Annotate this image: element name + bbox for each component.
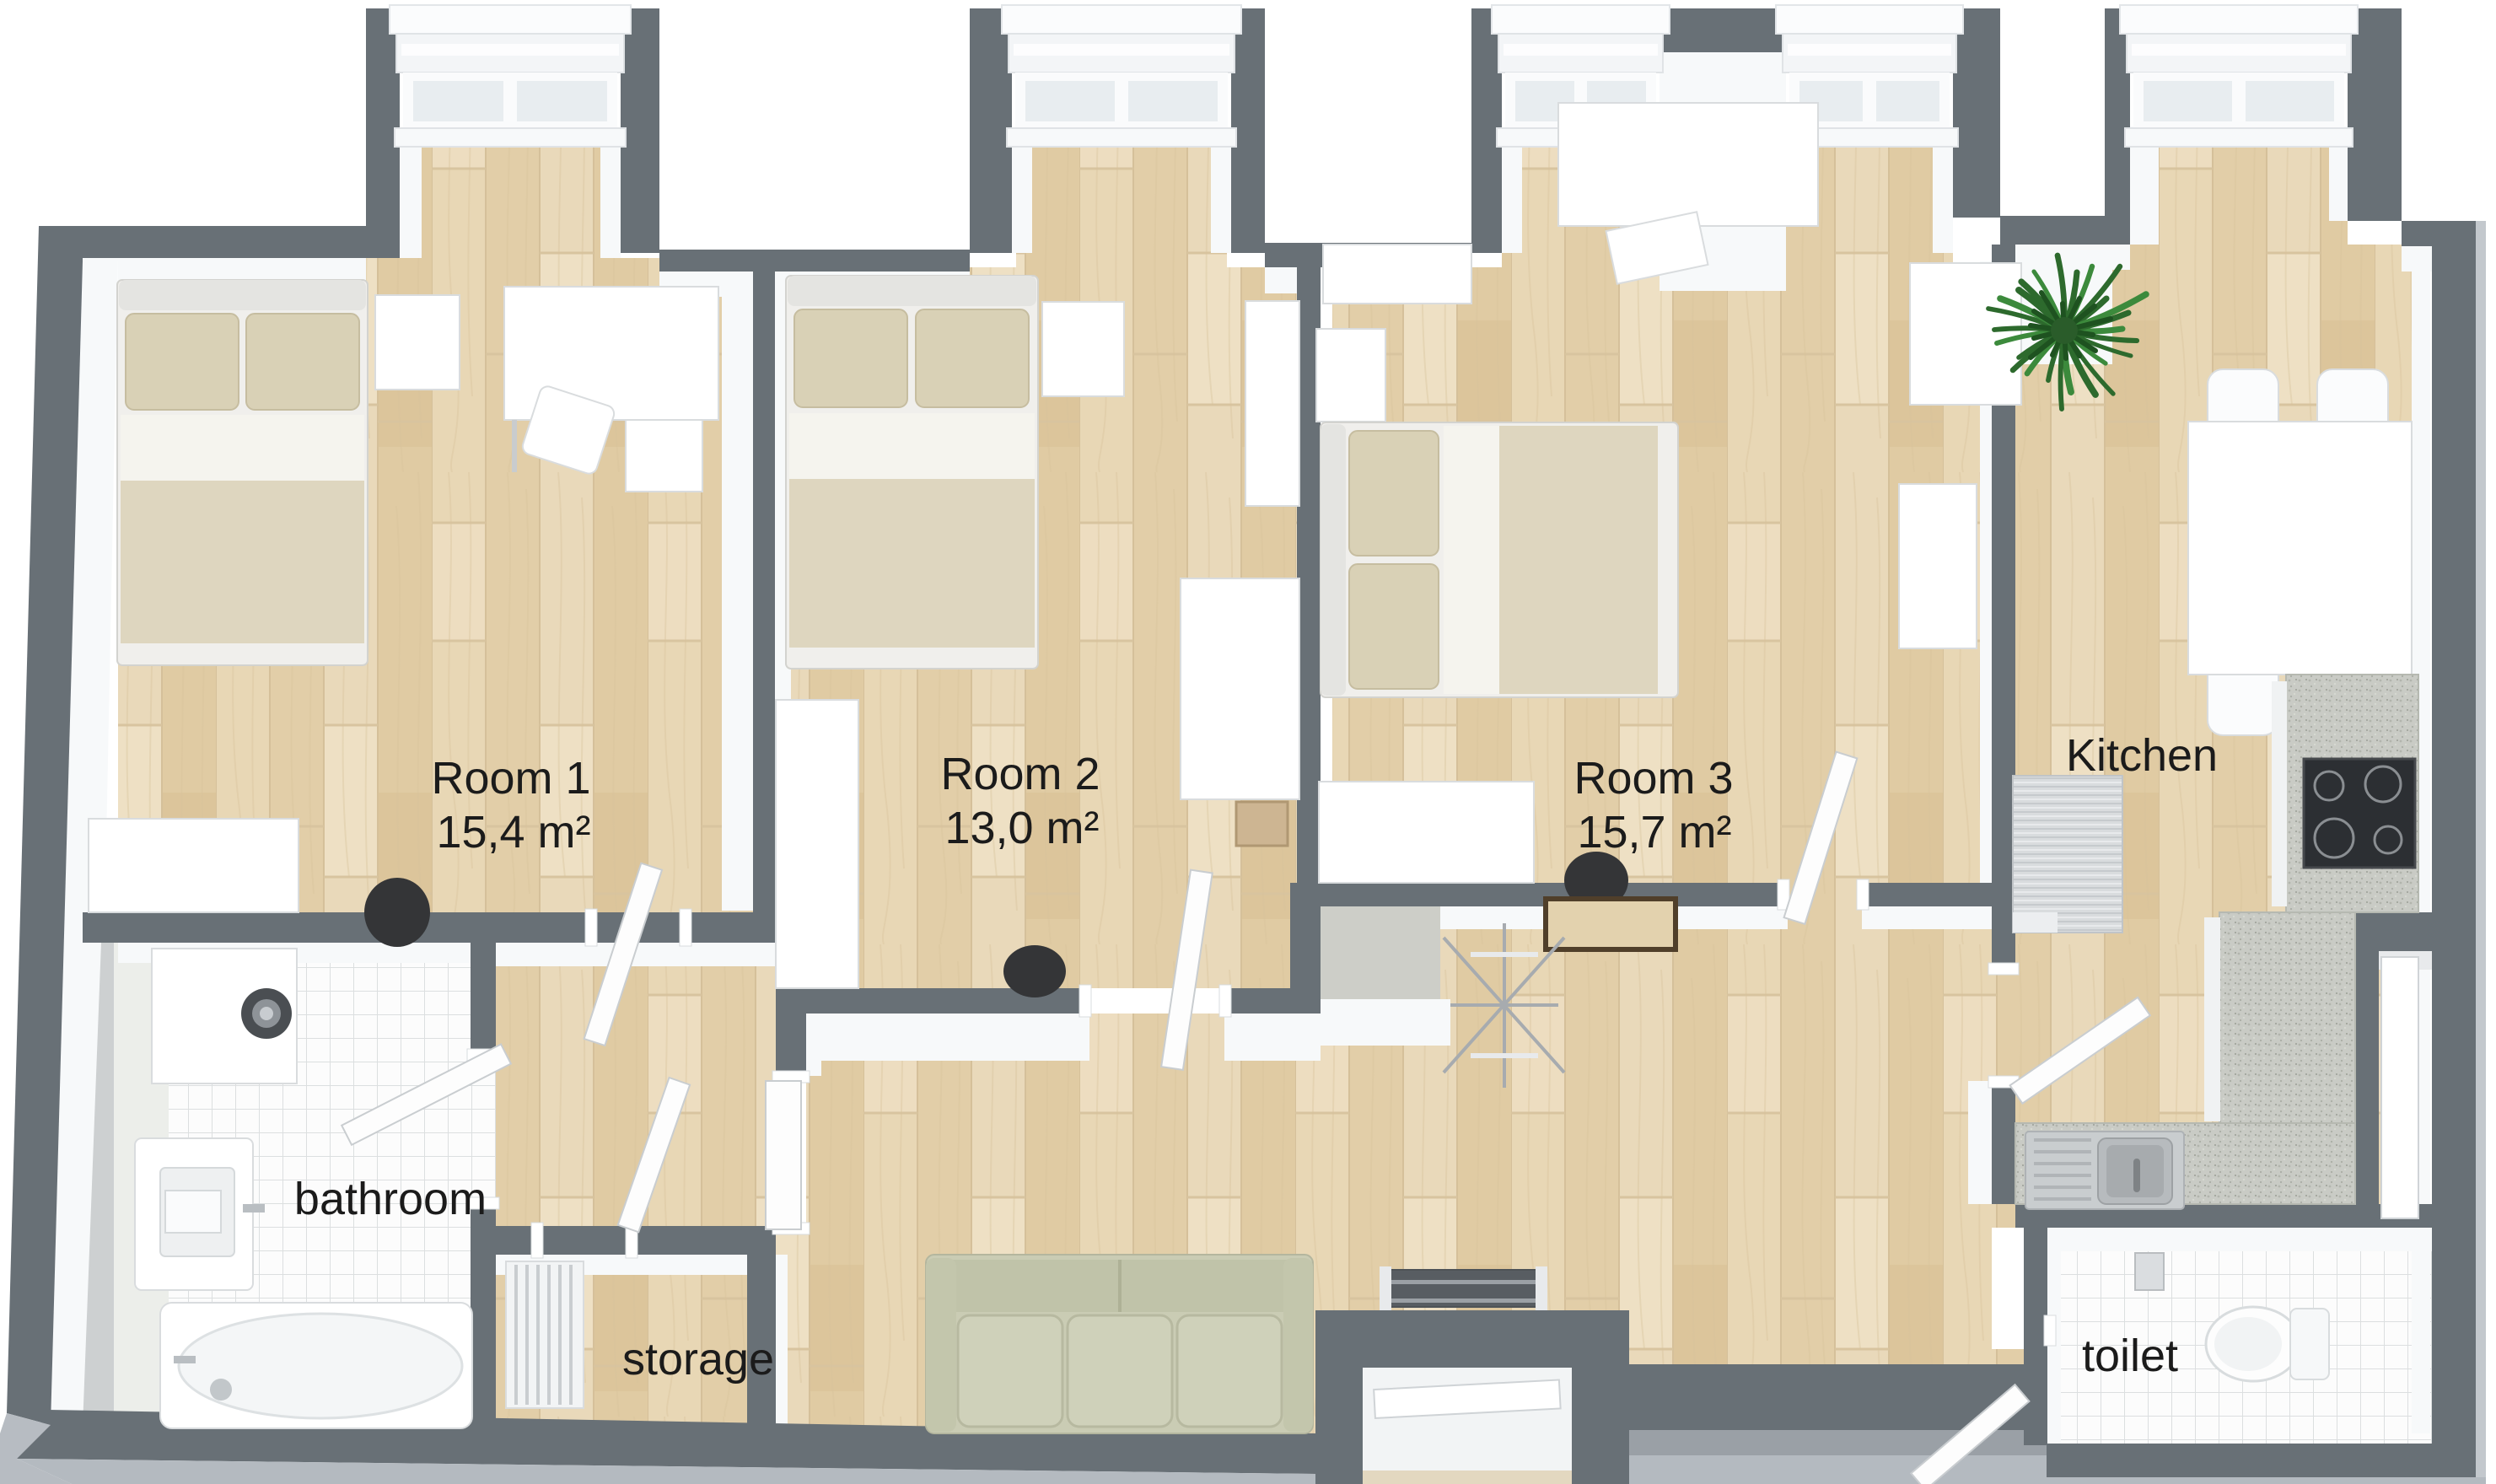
svg-text:13,0 m²: 13,0 m² bbox=[944, 803, 1099, 853]
svg-text:Room 3: Room 3 bbox=[1573, 753, 1733, 804]
svg-text:toilet: toilet bbox=[2082, 1331, 2178, 1381]
svg-text:bathroom: bathroom bbox=[294, 1174, 487, 1224]
svg-text:Room 1: Room 1 bbox=[431, 753, 590, 804]
svg-text:15,7 m²: 15,7 m² bbox=[1577, 807, 1731, 858]
svg-text:15,4 m²: 15,4 m² bbox=[436, 807, 590, 858]
svg-text:Room 2: Room 2 bbox=[940, 749, 1100, 799]
svg-text:Kitchen: Kitchen bbox=[2066, 730, 2218, 781]
svg-text:storage: storage bbox=[622, 1334, 774, 1385]
